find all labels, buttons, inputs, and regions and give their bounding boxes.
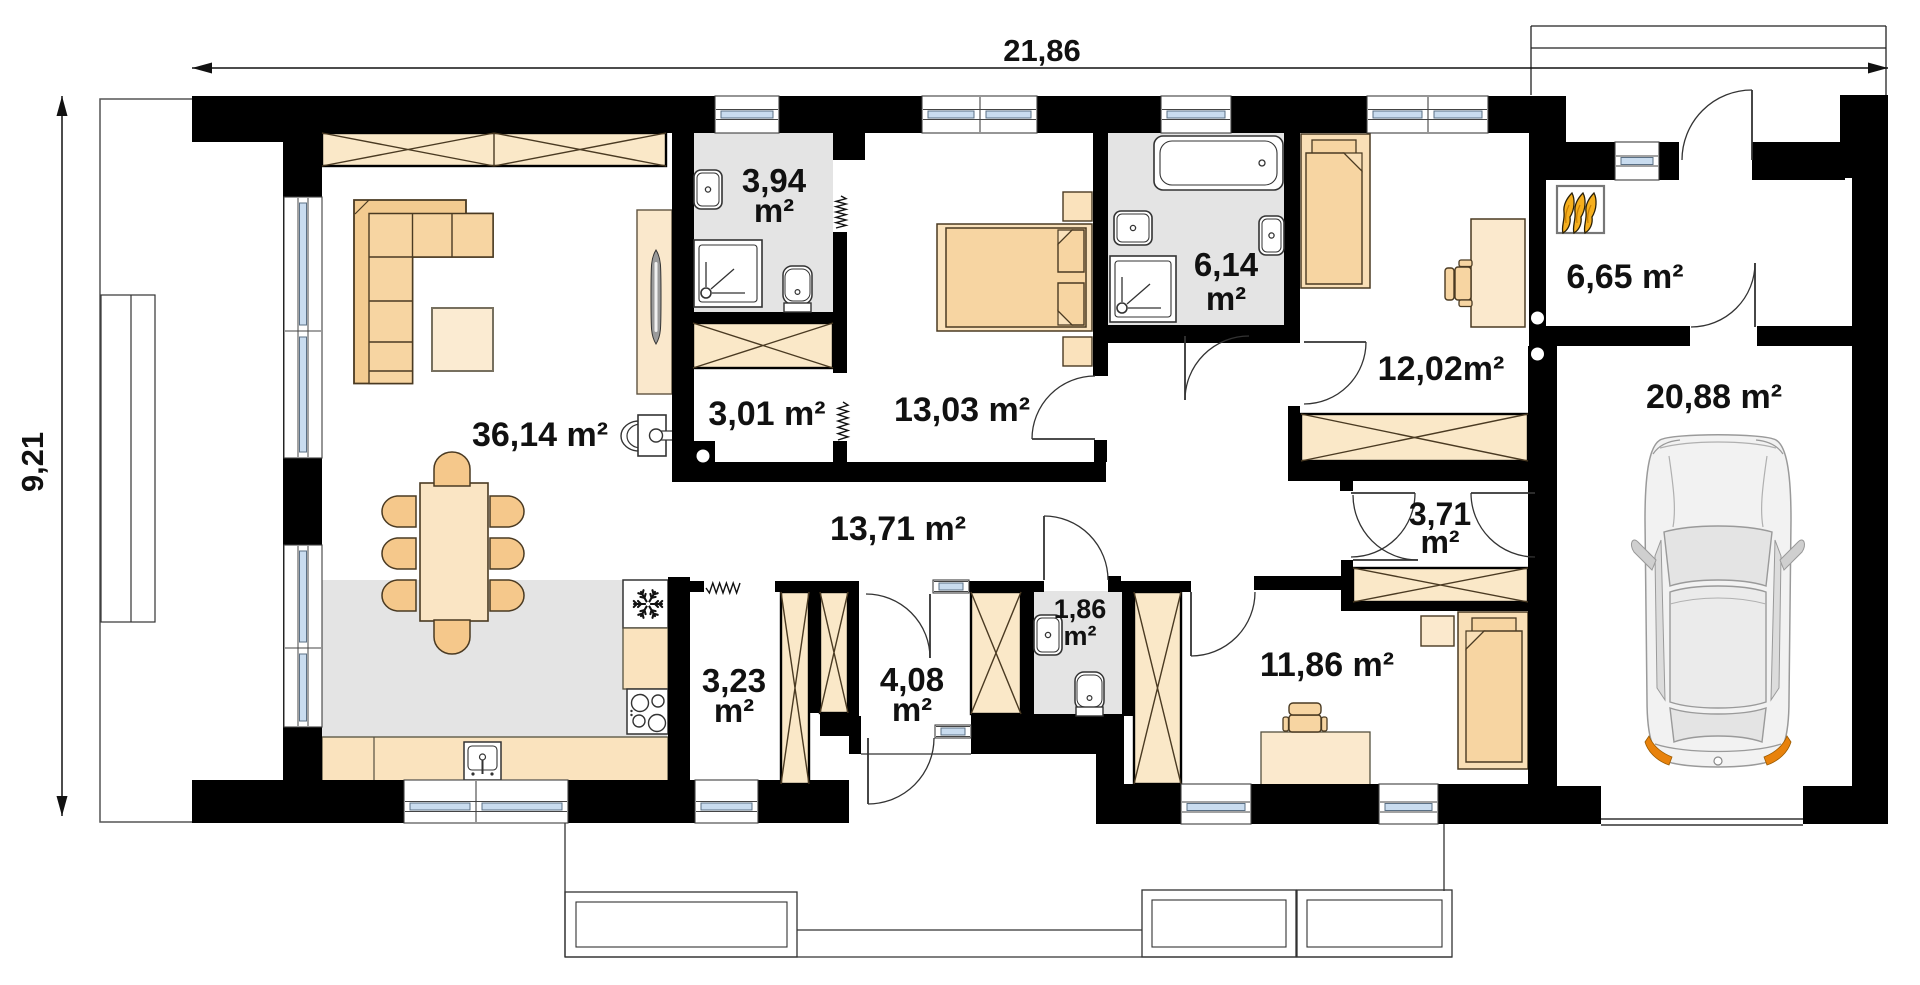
svg-text:6,65 m²: 6,65 m² <box>1566 258 1683 296</box>
svg-text:11,86 m²: 11,86 m² <box>1260 646 1394 684</box>
svg-text:36,14 m²: 36,14 m² <box>472 416 608 454</box>
svg-text:m²: m² <box>1420 524 1459 560</box>
svg-text:m²: m² <box>714 692 754 729</box>
svg-text:9,21: 9,21 <box>15 432 50 492</box>
svg-text:1,86: 1,86 <box>1054 594 1107 624</box>
svg-text:6,14: 6,14 <box>1194 246 1259 283</box>
svg-text:21,86: 21,86 <box>1003 33 1081 68</box>
svg-text:m²: m² <box>1064 621 1097 651</box>
svg-text:13,71 m²: 13,71 m² <box>830 510 966 548</box>
svg-text:12,02m²: 12,02m² <box>1378 350 1505 388</box>
svg-text:13,03 m²: 13,03 m² <box>894 391 1030 429</box>
svg-text:m²: m² <box>892 691 932 728</box>
svg-text:3,01 m²: 3,01 m² <box>708 395 825 433</box>
svg-text:20,88 m²: 20,88 m² <box>1646 378 1782 416</box>
svg-text:m²: m² <box>1206 280 1246 317</box>
svg-text:m²: m² <box>754 192 794 229</box>
